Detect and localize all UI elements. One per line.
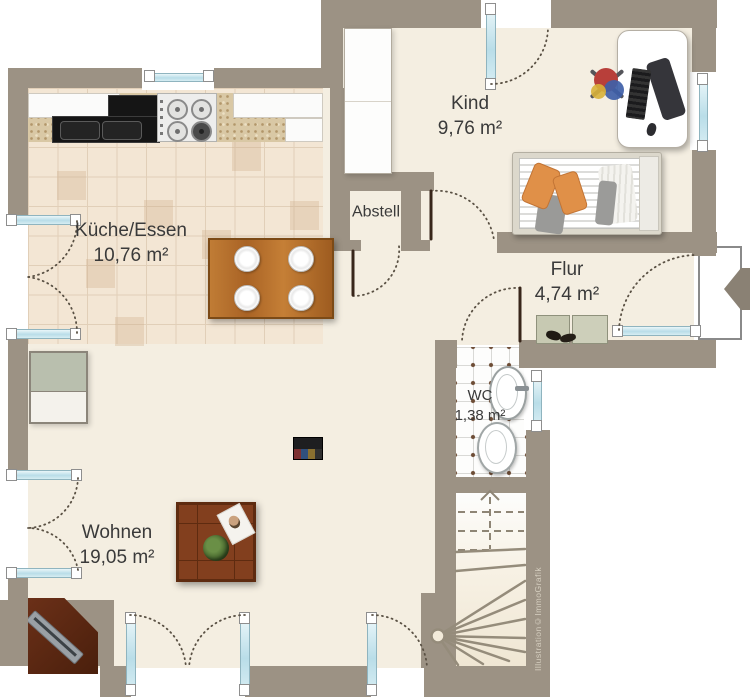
kitchen-sink-unit xyxy=(108,95,160,117)
tv-remote-tray xyxy=(293,437,323,460)
place-setting xyxy=(234,285,260,311)
kitchen-cabinet xyxy=(233,93,323,118)
wall-wc-left xyxy=(435,340,456,668)
room-area: 1,38 m² xyxy=(455,406,506,426)
child-room-top-door-leaf xyxy=(486,8,496,84)
terrace-french-door-leaf xyxy=(240,618,250,692)
desk-chair xyxy=(584,56,630,114)
entrance-landing xyxy=(698,246,742,340)
wall xyxy=(421,593,435,668)
room-name: Abstell xyxy=(352,200,400,225)
illustration-credit: Illustration©ImmoGrafik xyxy=(533,543,543,671)
terrace-door-leaf xyxy=(367,618,377,692)
wall-jamb xyxy=(401,240,430,251)
shoe-cabinet xyxy=(536,315,608,344)
room-area: 10,76 m² xyxy=(75,243,187,268)
room-label-abstell: Abstell xyxy=(352,200,400,225)
wall-top xyxy=(321,0,481,28)
wall-child-bottom xyxy=(497,232,717,253)
living-room-window-door-leaf xyxy=(12,568,79,578)
coffee-table xyxy=(176,502,256,582)
wardrobe xyxy=(344,28,392,174)
room-name: Wohnen xyxy=(80,520,155,545)
wall xyxy=(245,666,371,697)
wall-top xyxy=(551,0,717,28)
toilet xyxy=(477,422,517,474)
room-name: Küche/Essen xyxy=(75,218,187,243)
kitchen-balcony-door-leaf xyxy=(12,329,78,339)
place-setting xyxy=(234,246,260,272)
room-label-wc: WC 1,38 m² xyxy=(455,386,506,426)
wall-right xyxy=(692,26,716,75)
stove xyxy=(157,93,217,142)
room-label-kind: Kind 9,76 m² xyxy=(438,91,502,141)
living-room-window-door-leaf xyxy=(12,470,79,480)
room-name: Flur xyxy=(535,257,599,282)
entrance-door-leaf xyxy=(618,326,699,336)
room-name: WC xyxy=(455,386,506,406)
room-area: 9,76 m² xyxy=(438,116,502,141)
room-area: 19,05 m² xyxy=(80,545,155,570)
room-area: 4,74 m² xyxy=(535,282,599,307)
wall-wc-stair-divider xyxy=(435,477,529,493)
plant xyxy=(203,535,229,561)
wall-hall-bottom xyxy=(519,340,716,368)
kitchen-cabinet xyxy=(28,93,120,118)
bed xyxy=(512,152,662,235)
floor-plan: Küche/Essen 10,76 m² Abstell Kind 9,76 m… xyxy=(0,0,750,700)
kitchen-balcony-door-leaf xyxy=(12,215,78,225)
mouse xyxy=(645,122,657,137)
place-setting xyxy=(288,246,314,272)
place-setting xyxy=(288,285,314,311)
room-label-wohnen: Wohnen 19,05 m² xyxy=(80,520,155,570)
wall xyxy=(8,337,28,470)
faucet xyxy=(515,386,529,391)
wall-jamb xyxy=(330,240,361,251)
room-label-flur: Flur 4,74 m² xyxy=(535,257,599,307)
sideboard xyxy=(29,351,88,424)
stair-floor xyxy=(455,493,526,667)
wc-window xyxy=(533,377,542,425)
terrace-french-door-leaf xyxy=(126,618,136,692)
sink-bowl xyxy=(102,121,142,140)
child-room-window xyxy=(699,80,708,146)
dining-table xyxy=(208,238,334,319)
monitor xyxy=(645,57,686,121)
wall xyxy=(8,68,28,215)
room-name: Kind xyxy=(438,91,502,116)
sink-bowl xyxy=(60,121,100,140)
television xyxy=(26,610,84,665)
room-label-kueche: Küche/Essen 10,76 m² xyxy=(75,218,187,268)
kitchen-cabinet xyxy=(285,118,323,142)
wall-storage-right xyxy=(401,191,421,240)
kitchen-window xyxy=(150,73,208,82)
